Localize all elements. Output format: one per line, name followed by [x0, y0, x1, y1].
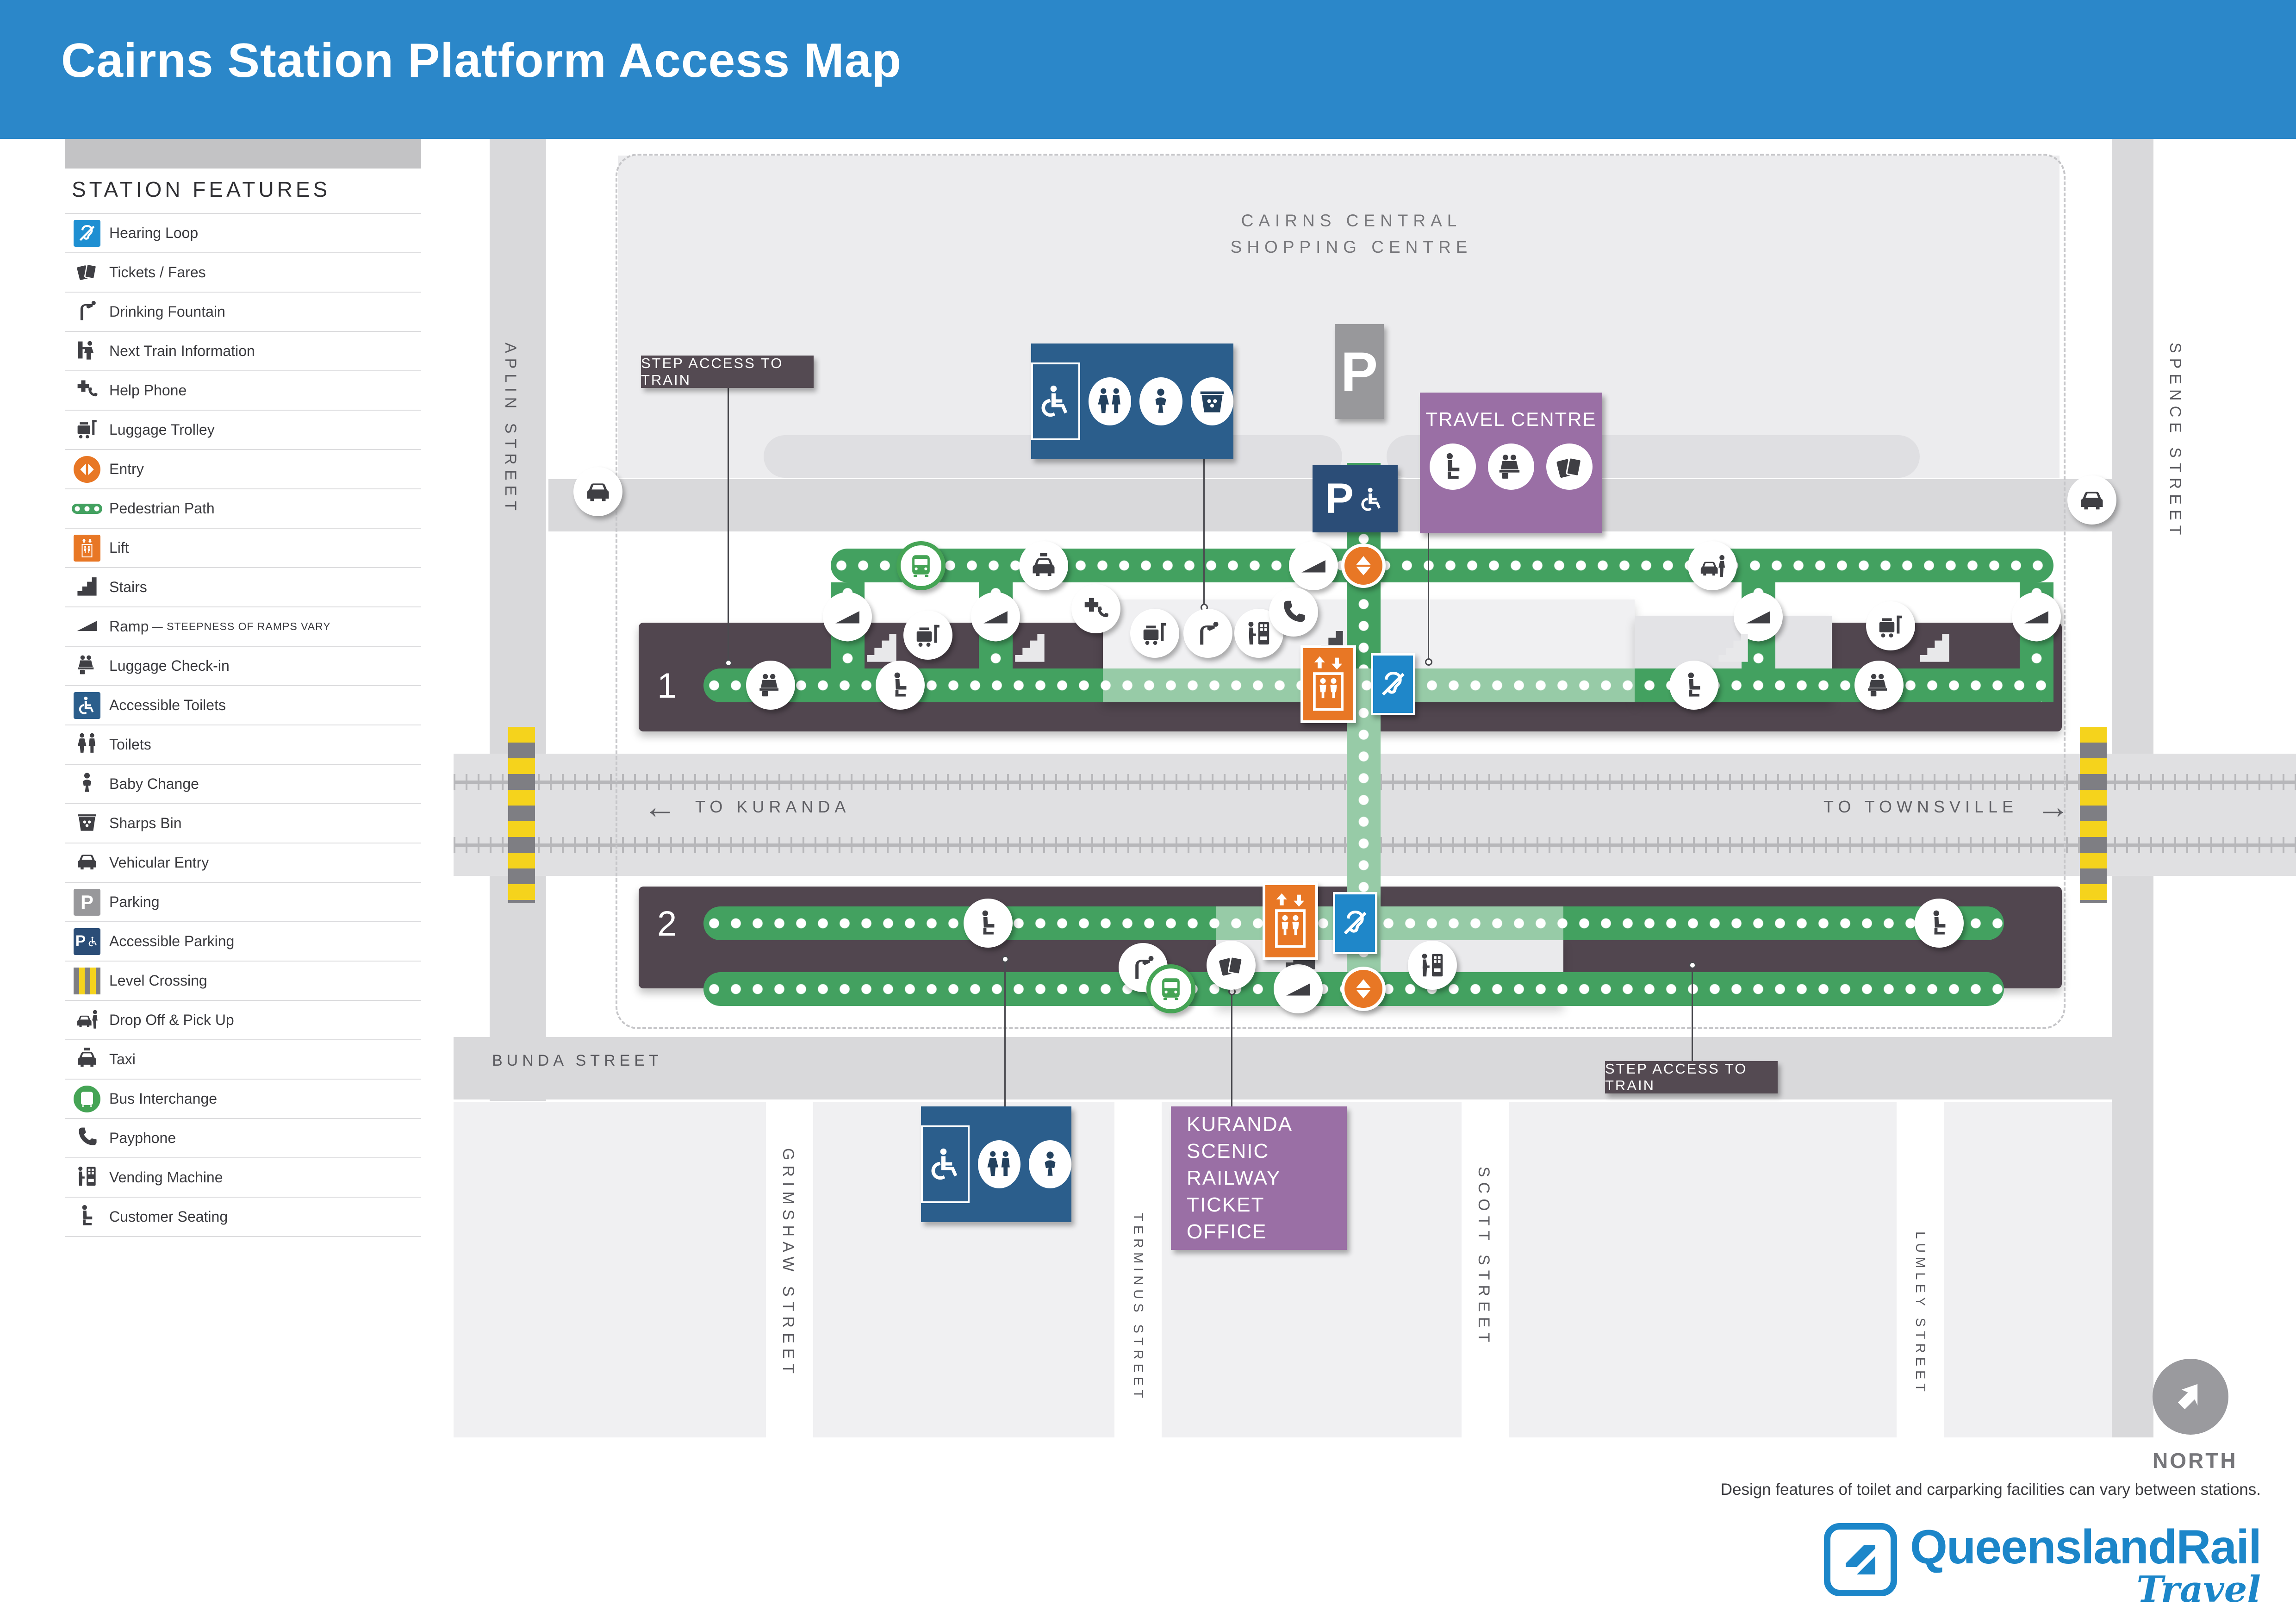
- legend-item-label: Drop Off & Pick Up: [109, 1012, 234, 1029]
- travel-centre-sign: TRAVEL CENTRE: [1420, 393, 1602, 533]
- ramp-icon: [75, 613, 99, 637]
- entry-icon: [78, 460, 96, 479]
- legend-item-payphone: Payphone: [65, 1119, 421, 1158]
- hearing-loop-icon: [1378, 669, 1408, 700]
- queensland-rail-logo-icon: [1824, 1523, 1897, 1596]
- tickets-icon: [75, 259, 99, 283]
- sharps-bin-icon: [75, 810, 99, 837]
- legend-item-level-crossing: Level Crossing: [65, 962, 421, 1001]
- legend-title: STATION FEATURES: [72, 177, 330, 202]
- accessible-icon: [87, 936, 99, 947]
- payphone-icon: [75, 1125, 99, 1149]
- drinking-fountain-icon: [75, 299, 99, 323]
- entry-v-icon: [1351, 554, 1375, 578]
- customer-seating-marker: [1669, 661, 1718, 710]
- luggage-checkin-icon: [756, 671, 785, 700]
- legend-item-luggage-checkin: Luggage Check-in: [65, 647, 421, 686]
- entry-v-marker: [1341, 967, 1386, 1011]
- ramp-icon: [981, 602, 1010, 631]
- accessible-parking-icon: P: [74, 928, 100, 955]
- direction-kuranda: ← TO KURANDA: [643, 797, 850, 817]
- legend-item-label: Taxi: [109, 1051, 136, 1068]
- help-phone-icon: [1082, 594, 1110, 623]
- legend-item-label: Drinking Fountain: [109, 303, 225, 320]
- toilets-icon: [1095, 386, 1125, 417]
- luggage-trolley-icon: [75, 417, 99, 443]
- logo-text: QueenslandRail: [1910, 1523, 2261, 1571]
- baby-change-icon: [1029, 1140, 1071, 1188]
- connector-line: [1231, 992, 1232, 1106]
- legend-item-label: Level Crossing: [109, 972, 207, 989]
- accessible-parking-sign: P: [1313, 465, 1398, 532]
- step-access-label-west: STEP ACCESS TO TRAIN: [641, 356, 814, 388]
- queensland-rail-travel-logo: QueenslandRail Travel: [1824, 1523, 2261, 1611]
- stairs-icon: [1715, 629, 1752, 666]
- vending-machine-icon: [1244, 619, 1273, 648]
- direction-townsville: TO TOWNSVILLE →: [1823, 797, 2070, 817]
- legend-item-ramp: Ramp — STEEPNESS OF RAMPS VARY: [65, 607, 421, 647]
- legend-item-label: Customer Seating: [109, 1208, 228, 1225]
- vending-machine-icon: [75, 1164, 99, 1188]
- pedestrian-path-icon: [72, 504, 102, 514]
- stairs-icon: [75, 574, 99, 598]
- customer-seating-marker: [1915, 899, 1964, 948]
- direction-townsville-label: TO TOWNSVILLE: [1823, 797, 2018, 817]
- legend-item-label: Accessible Toilets: [109, 697, 226, 714]
- car-marker: [573, 467, 622, 516]
- help-phone-marker: [1071, 584, 1120, 633]
- level-crossing-east: [2080, 727, 2107, 903]
- luggage-checkin-marker: [1854, 661, 1904, 710]
- page-title: Cairns Station Platform Access Map: [61, 33, 902, 88]
- legend-item-label: Vending Machine: [109, 1169, 223, 1186]
- step-access-label-east: STEP ACCESS TO TRAIN: [1605, 1061, 1778, 1093]
- north-arrow-glyph: [2168, 1374, 2213, 1419]
- luggage-trolley-marker: [903, 611, 952, 660]
- city-block: [1509, 1102, 1897, 1437]
- ramp-icon: [75, 613, 99, 640]
- legend-item-hearing-loop: Hearing Loop: [65, 213, 421, 253]
- customer-seating-icon: [1437, 451, 1468, 482]
- car-icon: [75, 849, 99, 874]
- spence-street-label: SPENCE STREET: [2166, 343, 2184, 540]
- luggage-checkin-icon: [1496, 451, 1526, 482]
- north-label: NORTH: [2153, 1448, 2228, 1473]
- hearing-loop-sign-platform1: [1371, 653, 1415, 715]
- city-block: [454, 1102, 766, 1437]
- help-phone-icon: [75, 377, 99, 404]
- legend-item-label: Baby Change: [109, 775, 199, 793]
- tickets-marker: [1207, 941, 1256, 990]
- car-marker: [2067, 475, 2116, 525]
- connector-line: [1203, 459, 1205, 607]
- station-features-legend: Hearing LoopTickets / FaresDrinking Foun…: [65, 213, 421, 1237]
- lift-icon: [77, 538, 97, 558]
- legend-item-pedestrian-path: Pedestrian Path: [65, 489, 421, 529]
- taxi-icon: [75, 1046, 99, 1073]
- drinking-fountain-icon: [1194, 619, 1222, 648]
- next-train-info-icon: [75, 338, 99, 362]
- accessible-toilets-icon: [74, 692, 100, 719]
- ramp-icon: [1299, 551, 1328, 580]
- car-icon: [2078, 486, 2106, 514]
- legend-item-note: — STEEPNESS OF RAMPS VARY: [149, 620, 330, 633]
- connector-line: [1428, 533, 1429, 662]
- logo-sub-text: Travel: [1910, 1568, 2261, 1611]
- legend-item-accessible: Accessible Toilets: [65, 686, 421, 725]
- bus-interchange-icon: [74, 1086, 100, 1112]
- legend-item-label: Bus Interchange: [109, 1090, 217, 1107]
- toilets-icon: [978, 1140, 1020, 1188]
- kuranda-ticket-office-sign: KURANDA SCENIC RAILWAY TICKET OFFICE: [1171, 1106, 1347, 1250]
- legend-item-stairs: Stairs: [65, 568, 421, 607]
- legend-item-label: Stairs: [109, 579, 147, 596]
- legend-item-label: Entry: [109, 461, 144, 478]
- toilets-sign-north: [1031, 344, 1233, 459]
- toilets-sign-south: [921, 1106, 1071, 1222]
- taxi-icon: [75, 1046, 99, 1070]
- baby-change-icon: [75, 771, 99, 797]
- drop-off-icon: [75, 1007, 99, 1033]
- legend-item-parking: PParking: [65, 883, 421, 922]
- legend-item-baby-change: Baby Change: [65, 765, 421, 804]
- lift-icon: [74, 535, 100, 562]
- luggage-trolley-icon: [1876, 612, 1905, 640]
- hearing-loop-sign-platform2: [1333, 892, 1377, 954]
- entry-icon: [74, 456, 100, 483]
- hearing-loop-icon: [74, 220, 100, 247]
- legend-item-toilets: Toilets: [65, 725, 421, 765]
- legend-item-drinking-fountain: Drinking Fountain: [65, 293, 421, 332]
- legend-item-label: Vehicular Entry: [109, 854, 209, 871]
- ramp-marker: [2012, 592, 2061, 641]
- connector-line: [1004, 959, 1006, 1106]
- payphone-icon: [75, 1125, 99, 1151]
- accessible-icon: [927, 1146, 964, 1182]
- legend-item-vending-machine: Vending Machine: [65, 1158, 421, 1198]
- ramp-marker: [1274, 964, 1323, 1013]
- legend-item-label: Toilets: [109, 736, 151, 753]
- baby-change-icon: [1145, 386, 1176, 417]
- toilets-icon: [75, 731, 99, 756]
- legend-item-label: Luggage Trolley: [109, 421, 215, 438]
- legend-item-label: Lift: [109, 539, 129, 556]
- stairs-icon: [863, 629, 900, 666]
- legend-item-lift: Lift: [65, 529, 421, 568]
- customer-seating-icon: [75, 1204, 99, 1230]
- legend-item-customer-seating: Customer Seating: [65, 1198, 421, 1237]
- bus-icon: [908, 552, 934, 579]
- customer-seating-marker: [876, 661, 925, 710]
- tickets-icon: [1554, 451, 1585, 482]
- luggage-trolley-marker: [1866, 601, 1915, 650]
- sharps-bin-icon: [1197, 386, 1227, 417]
- drop-off-icon: [75, 1007, 99, 1031]
- ramp-icon: [1744, 602, 1773, 631]
- legend-item-label: Hearing Loop: [109, 225, 198, 242]
- stairs-marker: [1916, 628, 1954, 666]
- vending-machine-icon: [1418, 951, 1447, 980]
- help-phone-icon: [75, 377, 99, 401]
- customer-seating-marker: [964, 899, 1013, 948]
- lumley-street-label: LUMLEY STREET: [1912, 1231, 1928, 1396]
- cairns-station-platform-access-map: Cairns Station Platform Access Map STATI…: [0, 0, 2296, 1624]
- payphone-icon: [1279, 598, 1308, 626]
- taxi-icon: [1029, 551, 1058, 580]
- drinking-fountain-marker: [1183, 609, 1232, 658]
- qr-mark-icon: [1838, 1537, 1883, 1582]
- customer-seating-icon: [1925, 909, 1954, 937]
- terminus-street-label: TERMINUS STREET: [1130, 1213, 1145, 1402]
- luggage-checkin-icon: [75, 653, 99, 679]
- legend-item-next-train-info: Next Train Information: [65, 332, 421, 371]
- tickets-icon: [75, 259, 99, 286]
- lift-sign-platform2: [1263, 882, 1318, 960]
- legend-item-label: Payphone: [109, 1130, 176, 1147]
- taxi-marker: [1019, 541, 1068, 590]
- legend-item-label: Next Train Information: [109, 343, 255, 360]
- luggage-trolley-icon: [75, 417, 99, 441]
- legend-item-bus: Bus Interchange: [65, 1080, 421, 1119]
- drop-off-marker: [1688, 541, 1737, 590]
- toilets-icon: [984, 1149, 1014, 1180]
- entry-v-icon: [1351, 977, 1375, 1001]
- stairs-icon: [1011, 629, 1048, 666]
- travel-centre-label: TRAVEL CENTRE: [1420, 408, 1602, 431]
- accessible-icon: [77, 695, 97, 716]
- luggage-checkin-icon: [1488, 443, 1534, 490]
- legend-item-luggage-trolley: Luggage Trolley: [65, 411, 421, 450]
- legend-item-help-phone: Help Phone: [65, 371, 421, 411]
- shopping-centre-label: CAIRNS CENTRAL SHOPPING CENTRE: [1120, 207, 1583, 261]
- drop-off-icon: [1698, 551, 1727, 580]
- lift-sign-platform1: [1300, 645, 1356, 723]
- customer-seating-icon: [886, 671, 915, 700]
- luggage-checkin-icon: [75, 653, 99, 677]
- legend-item-entry: Entry: [65, 450, 421, 489]
- bunda-street-road: [454, 1037, 2112, 1099]
- parking-icon: P: [74, 889, 100, 916]
- luggage-trolley-marker: [1130, 609, 1179, 658]
- legend-item-accessible-parking: PAccessible Parking: [65, 922, 421, 962]
- customer-seating-icon: [1680, 671, 1708, 700]
- city-block: [1944, 1102, 2112, 1437]
- path-highlight: [1347, 702, 1381, 906]
- toilets-icon: [1089, 377, 1131, 425]
- stairs-marker: [1011, 628, 1049, 666]
- legend-item-drop-off: Drop Off & Pick Up: [65, 1001, 421, 1040]
- legend-item-label: Help Phone: [109, 382, 187, 399]
- legend-item-tickets: Tickets / Fares: [65, 253, 421, 293]
- hearing-loop-icon: [1340, 908, 1370, 938]
- parking-sign: P: [1335, 324, 1384, 419]
- legend-item-label: Tickets / Fares: [109, 264, 206, 281]
- tickets-icon: [1217, 951, 1245, 980]
- toilets-icon: [75, 731, 99, 758]
- accessible-icon: [921, 1125, 970, 1203]
- lift-icon: [1308, 654, 1348, 714]
- aplin-street-label: APLIN STREET: [501, 343, 519, 516]
- stairs-icon: [1916, 629, 1953, 666]
- baby-change-icon: [1035, 1149, 1065, 1180]
- aplin-street-road: [490, 139, 546, 1101]
- stairs-icon: [75, 574, 99, 600]
- legend-item-label: Accessible Parking: [109, 933, 234, 950]
- vending-machine-marker: [1408, 941, 1457, 990]
- accessible-icon: [1358, 486, 1385, 513]
- disclaimer-text: Design features of toilet and carparking…: [1659, 1480, 2261, 1499]
- car-icon: [584, 477, 612, 506]
- customer-seating-icon: [974, 909, 1002, 937]
- wheelchair-icon: [1358, 475, 1385, 523]
- drinking-fountain-icon: [75, 299, 99, 325]
- ramp-icon: [833, 602, 862, 631]
- legend-item-label: Parking: [109, 893, 160, 911]
- grimshaw-street-label: GRIMSHAW STREET: [779, 1148, 797, 1379]
- baby-change-icon: [75, 771, 99, 795]
- sharps-bin-icon: [75, 810, 99, 834]
- entry-v-marker: [1341, 543, 1386, 588]
- accessible-icon: [1038, 383, 1074, 419]
- legend-item-car: Vehicular Entry: [65, 843, 421, 883]
- bus-marker: [1146, 964, 1195, 1013]
- legend-item-taxi: Taxi: [65, 1040, 421, 1080]
- customer-seating-icon: [75, 1204, 99, 1228]
- luggage-trolley-icon: [914, 621, 942, 650]
- legend-item-label: Ramp: [109, 618, 149, 635]
- ramp-icon: [2022, 602, 2051, 631]
- bunda-street-label: BUNDA STREET: [492, 1052, 663, 1070]
- legend-item-sharps-bin: Sharps Bin: [65, 804, 421, 843]
- sharps-bin-icon: [1191, 377, 1233, 425]
- next-train-info-icon: [75, 338, 99, 364]
- stairs-marker: [1714, 628, 1752, 666]
- ramp-icon: [1284, 974, 1313, 1003]
- scott-street-label: SCOTT STREET: [1475, 1167, 1493, 1347]
- connector-line: [728, 388, 729, 663]
- header-bar: Cairns Station Platform Access Map: [0, 0, 2296, 139]
- customer-seating-icon: [1430, 443, 1476, 490]
- bus-icon: [78, 1090, 96, 1108]
- tickets-icon: [1546, 443, 1593, 490]
- luggage-trolley-icon: [1140, 619, 1169, 648]
- connector-line: [1692, 965, 1693, 1061]
- vending-machine-icon: [75, 1164, 99, 1191]
- platform-1-number: 1: [657, 666, 677, 706]
- level-crossing-icon: [74, 968, 100, 994]
- lift-icon: [1270, 891, 1310, 951]
- legend-item-label: Sharps Bin: [109, 815, 182, 832]
- path-highlight: [1103, 668, 1635, 702]
- legend-item-label: Luggage Check-in: [109, 657, 230, 675]
- legend-item-label: Pedestrian Path: [109, 500, 215, 517]
- bus-icon: [1157, 975, 1184, 1002]
- platform-2-number: 2: [657, 904, 677, 944]
- north-arrow-icon: [2153, 1359, 2228, 1435]
- hearing-loop-icon: [77, 223, 97, 244]
- stairs-marker: [863, 628, 901, 666]
- bus-marker: [896, 541, 946, 590]
- luggage-checkin-icon: [1865, 671, 1893, 700]
- ramp-marker: [1289, 541, 1338, 590]
- accessible-icon: [1031, 362, 1080, 440]
- luggage-checkin-marker: [746, 661, 795, 710]
- pedestrian-path-top: [831, 549, 2053, 582]
- level-crossing-west: [508, 727, 535, 903]
- direction-kuranda-label: TO KURANDA: [695, 797, 850, 817]
- baby-change-icon: [1139, 377, 1182, 425]
- car-icon: [75, 849, 99, 876]
